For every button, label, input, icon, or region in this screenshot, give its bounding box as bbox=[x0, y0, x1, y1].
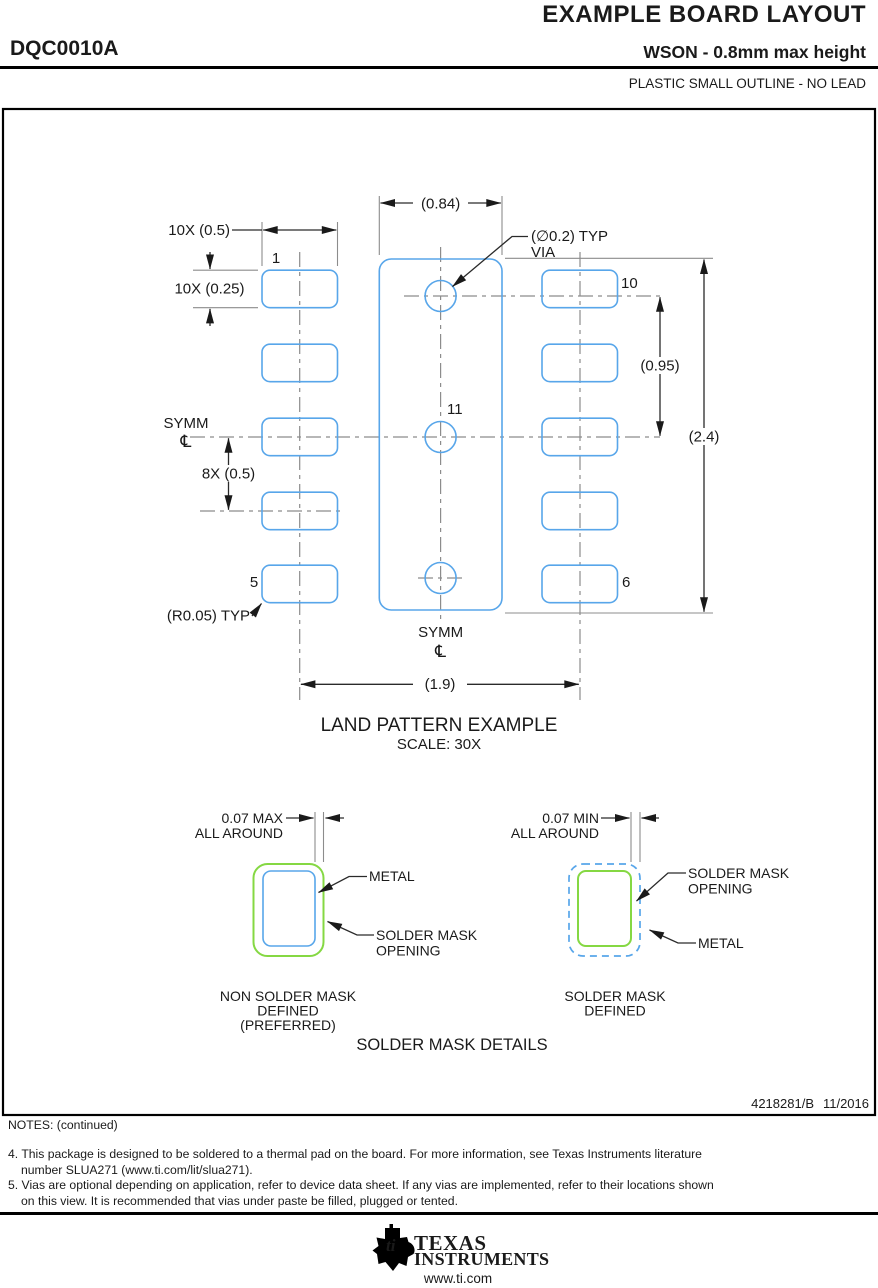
note-4-line-1: 4. This package is designed to be solder… bbox=[8, 1147, 868, 1163]
symm-left-label: SYMM bbox=[164, 415, 209, 432]
land-pattern-drawing: (0.84) 10X (0.5) 10X (0.25) 8X (0.5) (0.… bbox=[0, 0, 878, 1288]
nsmd-metal-shape bbox=[263, 871, 315, 946]
dim-pad-width: 10X (0.5) bbox=[168, 222, 230, 239]
smd-caption-2: DEFINED bbox=[584, 1003, 645, 1019]
dim-pitch: 8X (0.5) bbox=[202, 466, 255, 483]
smd-clearance-note: ALL AROUND bbox=[511, 825, 599, 841]
view-scale: SCALE: 30X bbox=[397, 736, 481, 753]
svg-text:ti: ti bbox=[386, 1236, 396, 1255]
dim-via-pitch: (0.95) bbox=[640, 358, 679, 375]
radius-leader-line bbox=[252, 604, 262, 617]
website-link[interactable]: www.ti.com bbox=[368, 1271, 548, 1286]
notes-section: NOTES: (continued) 4. This package is de… bbox=[8, 1118, 868, 1210]
revision-date: 11/2016 bbox=[823, 1096, 869, 1111]
pin-1-label: 1 bbox=[272, 250, 280, 267]
smd-solder-mask-opening-shape bbox=[578, 871, 631, 946]
nsmd-clearance-value: 0.07 MAX bbox=[222, 810, 284, 826]
dim-pad-height: 10X (0.25) bbox=[174, 281, 244, 298]
nsmd-detail: 0.07 MAX ALL AROUND METAL SOLDER MASK OP… bbox=[195, 810, 478, 1033]
dim-overall-height: (2.4) bbox=[689, 429, 720, 446]
nsmd-opening-label-2: OPENING bbox=[376, 943, 441, 959]
pin-5-label: 5 bbox=[250, 574, 258, 591]
ti-bug-icon: ti bbox=[372, 1224, 416, 1272]
notes-heading: NOTES: (continued) bbox=[8, 1118, 868, 1134]
smd-opening-label-2: OPENING bbox=[688, 881, 753, 897]
via-leader-line bbox=[453, 237, 529, 287]
pin-10-label: 10 bbox=[621, 275, 638, 292]
smd-metal-label: METAL bbox=[698, 935, 744, 951]
nsmd-clearance-note: ALL AROUND bbox=[195, 825, 283, 841]
corner-radius-label: (R0.05) TYP bbox=[167, 608, 250, 625]
smd-detail: 0.07 MIN ALL AROUND SOLDER MASK OPENING … bbox=[511, 810, 790, 1019]
pin-6-label: 6 bbox=[622, 574, 630, 591]
nsmd-opening-label-1: SOLDER MASK bbox=[376, 927, 478, 943]
via-diameter-label: (∅0.2) TYP bbox=[531, 228, 608, 245]
brand-name-instruments: INSTRUMENTS bbox=[414, 1249, 549, 1270]
note-5-line-2: on this view. It is recommended that via… bbox=[8, 1194, 868, 1210]
dim-center-pad-width: (0.84) bbox=[421, 196, 460, 213]
symm-bottom-label: SYMM bbox=[418, 624, 463, 641]
dim-row-spacing: (1.9) bbox=[425, 676, 456, 693]
document-number: 4218281/B bbox=[751, 1096, 814, 1111]
centerline-symbol-left-icon: ℄ bbox=[180, 432, 192, 452]
nsmd-caption-3: (PREFERRED) bbox=[240, 1017, 336, 1033]
smd-opening-label-1: SOLDER MASK bbox=[688, 865, 790, 881]
drawing-border-frame bbox=[3, 109, 875, 1115]
view-title: LAND PATTERN EXAMPLE bbox=[321, 715, 558, 736]
smd-clearance-value: 0.07 MIN bbox=[542, 810, 599, 826]
nsmd-metal-label: METAL bbox=[369, 868, 415, 884]
note-4-line-2: number SLUA271 (www.ti.com/lit/slua271). bbox=[8, 1163, 868, 1179]
footer-divider bbox=[0, 1212, 878, 1215]
via-label: VIA bbox=[531, 244, 555, 261]
note-5-line-1: 5. Vias are optional depending on applic… bbox=[8, 1178, 868, 1194]
solder-mask-details-title: SOLDER MASK DETAILS bbox=[356, 1036, 547, 1054]
land-pads bbox=[262, 259, 618, 610]
centerline-symbol-bottom-icon: ℄ bbox=[434, 642, 446, 662]
pin-11-label: 11 bbox=[447, 401, 463, 418]
